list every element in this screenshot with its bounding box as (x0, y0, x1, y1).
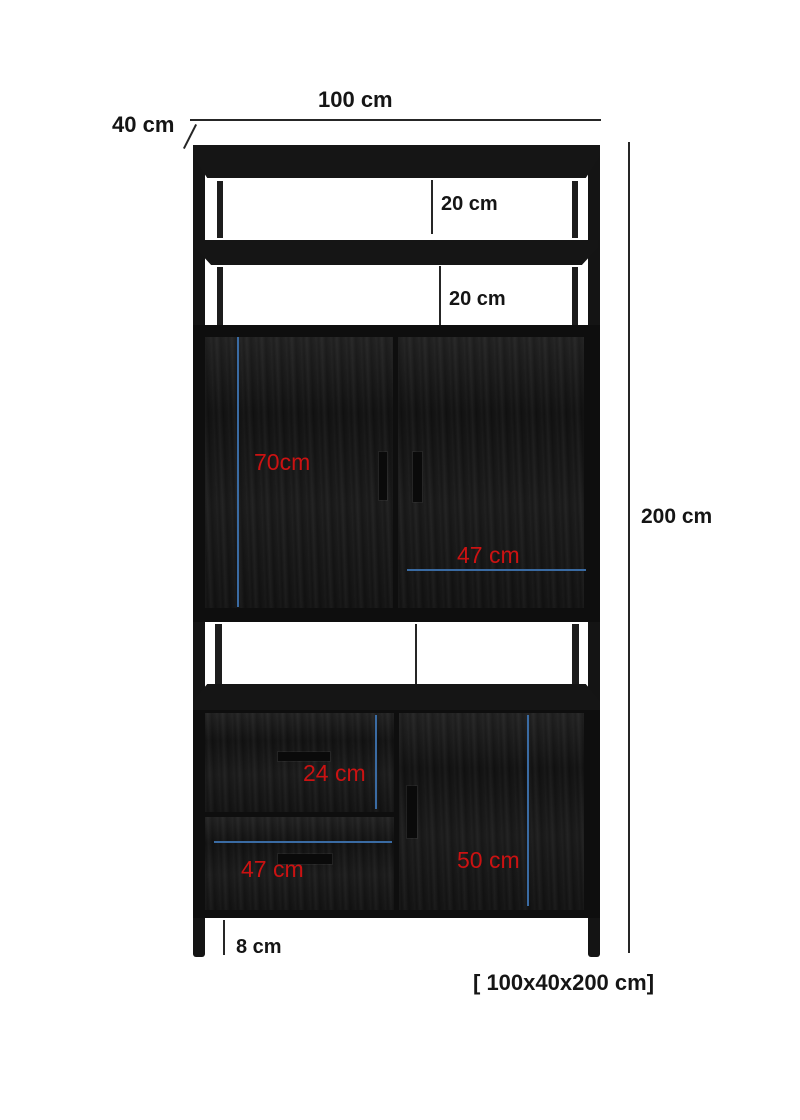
overall-size-label: [ 100x40x200 cm] (473, 970, 654, 996)
back-post-strip (572, 267, 578, 326)
leg-height-label: 8 cm (236, 936, 282, 959)
lower-door (399, 713, 584, 910)
back-post-strip (215, 624, 222, 684)
height-dimension-label: 200 cm (641, 505, 712, 529)
shelf-gap-1-tick-line (431, 180, 433, 234)
shelf-gap-2-label: 20 cm (449, 288, 506, 311)
leg-height-tick-line (223, 920, 225, 955)
upper-door-height-label: 70cm (254, 449, 310, 476)
measure-line-24cm (375, 715, 377, 809)
width-dimension-label: 100 cm (318, 87, 393, 113)
measure-line-47cm-upper (407, 569, 586, 571)
shelf-gap-1-label: 20 cm (441, 193, 498, 216)
back-post-strip (217, 181, 223, 238)
top-drawer-height-label: 24 cm (303, 760, 366, 787)
upper-door-width-label: 47 cm (457, 542, 520, 569)
back-post-strip (217, 267, 223, 326)
shelf-gap-2-tick-line (439, 266, 441, 326)
upper-right-door-handle (413, 452, 422, 502)
bottom-drawer-width-label: 47 cm (241, 856, 304, 883)
lower-door-height-label: 50 cm (457, 847, 520, 874)
middle-gap-tick-line (415, 624, 417, 684)
width-dimension-line (190, 119, 601, 121)
back-post-strip (572, 181, 578, 238)
measure-line-47cm-lower (214, 841, 392, 843)
lower-door-handle (407, 786, 417, 838)
dimension-diagram: 100 cm 40 cm 20 cm 20 cm 200 cm 8 cm [ 1… (0, 0, 800, 1120)
upper-left-door-handle (379, 452, 387, 500)
top-drawer-front (205, 713, 394, 812)
measure-line-50cm (527, 715, 529, 906)
measure-line-70cm (237, 337, 239, 607)
back-post-strip (572, 624, 579, 684)
cabinet-top-band (193, 145, 600, 178)
shelf-band-second (195, 240, 598, 265)
depth-dimension-label: 40 cm (112, 112, 174, 138)
lower-cabinet-top-band (193, 684, 600, 710)
height-dimension-line (628, 142, 630, 953)
